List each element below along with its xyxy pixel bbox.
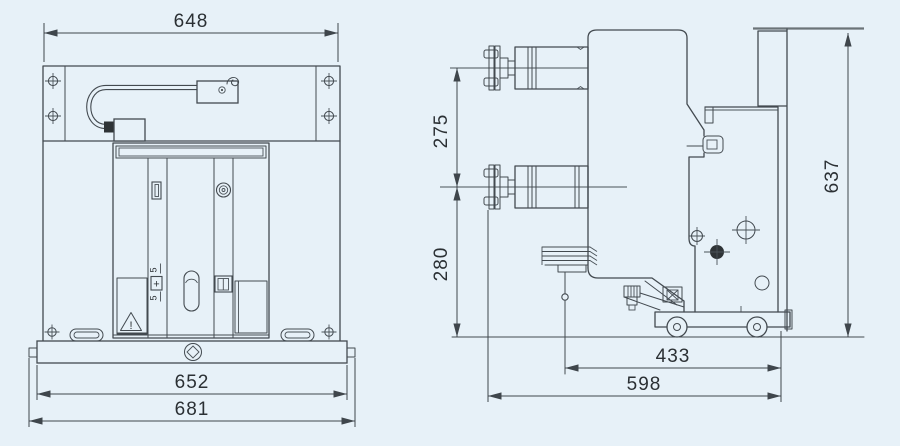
interlock-hole-icon <box>704 239 730 265</box>
latch-detail <box>687 136 723 153</box>
dim-pole-centers-label: 275 <box>431 114 452 149</box>
counter-lower-digit: 5 <box>149 295 159 300</box>
cart <box>655 306 792 337</box>
charging-indicator <box>215 276 232 292</box>
warning-mark: ! <box>129 320 132 332</box>
dim-pole-centers: 275 <box>431 68 457 187</box>
secondary-plug <box>197 77 239 103</box>
screw-icon <box>45 73 61 89</box>
manual-slot <box>184 271 199 311</box>
pole-body <box>588 30 704 312</box>
cart-wheel <box>667 317 687 337</box>
operation-counter: 5 + 5 <box>149 264 163 302</box>
dim-overall-depth-label: 598 <box>627 374 662 395</box>
dim-overall-width-label: 681 <box>175 399 210 420</box>
counter-plus: + <box>153 279 159 291</box>
screw-icon <box>45 325 60 340</box>
cart-wheel <box>747 317 767 337</box>
flexible-connector <box>542 247 597 374</box>
nameplate <box>116 146 266 158</box>
dim-overall-height-label: 637 <box>822 159 843 194</box>
dim-wheelbase-label: 433 <box>656 346 691 367</box>
dim-overall-height: 637 <box>822 33 848 337</box>
counter-upper-digit: 5 <box>149 267 159 272</box>
dim-wheelbase: 433 <box>565 331 781 402</box>
screw-icon <box>45 108 61 124</box>
cable-connector-block <box>104 122 115 133</box>
front-view: 648 <box>29 11 355 427</box>
dim-base-width: 652 <box>37 365 347 400</box>
mechanism-linkage <box>624 286 684 310</box>
screw-icon <box>321 108 337 124</box>
screw-icon <box>321 73 337 89</box>
corner-bolt-icon <box>689 227 705 245</box>
dim-base-width-label: 652 <box>175 372 210 393</box>
front-door: 5 + 5 ! <box>113 143 269 338</box>
frame-hole <box>755 276 769 290</box>
foot-pad <box>281 329 314 341</box>
chassis <box>43 66 340 141</box>
selector-knob <box>217 183 231 197</box>
push-button <box>152 182 161 199</box>
linkage-pivot <box>562 294 568 300</box>
dim-overall-depth: 598 <box>488 210 781 402</box>
foot-pad <box>70 329 103 341</box>
technical-drawing-canvas: 648 <box>0 0 900 446</box>
dim-lower-terminal-height: 280 <box>431 187 457 337</box>
warning-panel: ! <box>117 278 147 334</box>
dim-top-width: 648 <box>44 11 338 62</box>
dim-lower-terminal-height-label: 280 <box>431 247 452 282</box>
side-view: 275 280 637 433 598 <box>431 29 864 403</box>
breaker-outline-drawing: 648 <box>0 0 900 446</box>
frame-plate <box>689 107 778 312</box>
screw-icon <box>322 325 337 340</box>
junction-box <box>114 119 145 141</box>
dim-top-width-label: 648 <box>174 11 209 32</box>
rear-rail <box>753 29 864 332</box>
base-channel <box>37 341 347 363</box>
label-panel <box>235 281 267 333</box>
base-tab <box>29 348 37 357</box>
warning-triangle-icon: ! <box>121 313 142 333</box>
base-assembly <box>29 325 355 364</box>
frame-bolt-icon <box>732 216 760 244</box>
base-tab <box>347 348 355 357</box>
